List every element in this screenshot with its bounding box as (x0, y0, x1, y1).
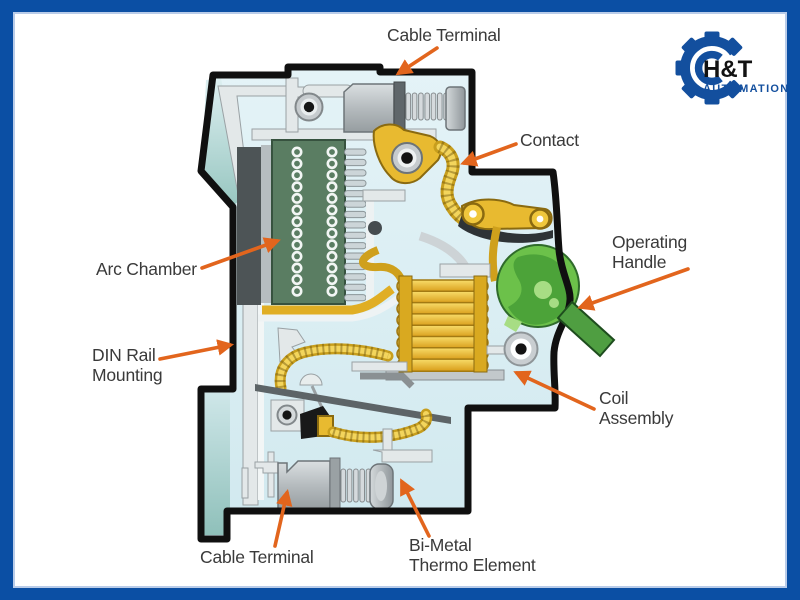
arc-splitter-plates (345, 149, 367, 301)
logo-subtitle: AUTOMATION (703, 83, 790, 95)
top-cable-terminal (344, 82, 465, 132)
label-text-arc-chamber: Arc Chamber (96, 259, 197, 279)
coil-bobbin-left (399, 276, 412, 372)
bottom-ledge (373, 450, 432, 462)
bottom-post-left (242, 468, 248, 498)
top-screw-threads (406, 93, 448, 120)
label-text-cable-terminal-bottom: Cable Terminal (200, 547, 314, 567)
mcb-cutaway-diagram: Cable TerminalContactArc ChamberOperatin… (0, 0, 800, 600)
handle-pivot-pin (515, 343, 526, 354)
arc-chamber-box (272, 140, 345, 304)
arc-chamber-back-plate (237, 147, 261, 305)
arc-chamber-shelf (363, 190, 405, 201)
coil-bobbin-right (474, 276, 487, 372)
coil-top-bar (440, 264, 490, 277)
mid-shelf (352, 362, 407, 371)
contact-pivot-pin (401, 152, 413, 164)
label-text-din-rail-mounting: DIN RailMounting (92, 345, 162, 385)
logo-brand: H&T (703, 56, 753, 83)
label-text-contact: Contact (520, 130, 579, 150)
label-text-cable-terminal-top: Cable Terminal (387, 25, 501, 45)
trip-pivot-pin (282, 410, 291, 419)
bottom-riser (383, 429, 392, 453)
top-pivot-pin (304, 102, 314, 112)
contact-rivet-left-hole (469, 210, 477, 218)
case-rivet (368, 221, 382, 235)
top-terminal-cap (446, 87, 465, 130)
contact-rivet-right-hole (537, 216, 544, 223)
bottom-post-right (268, 452, 274, 497)
bottom-cable-terminal (278, 458, 393, 511)
bottom-terminal-clamp (330, 458, 340, 511)
bottom-terminal-cap-face (375, 471, 387, 501)
coil-lead-right (493, 227, 497, 281)
